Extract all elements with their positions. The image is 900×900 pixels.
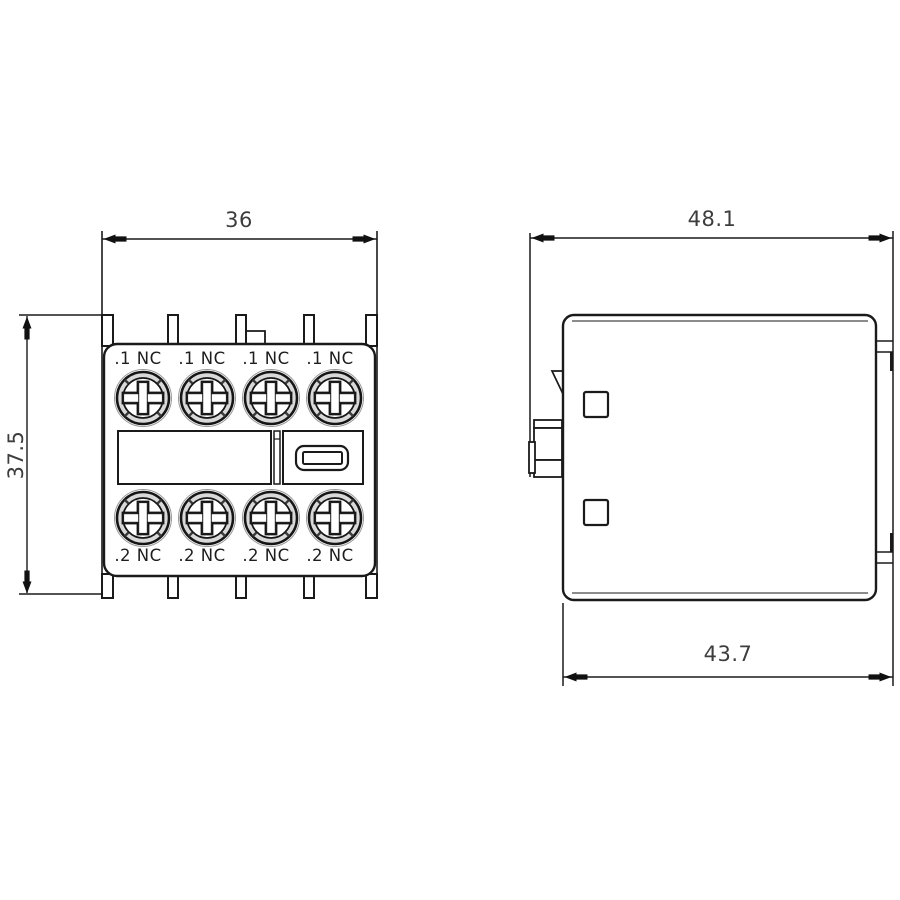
terminal-label-bottom-3: .2 NC [234, 547, 298, 565]
arrowhead-right [869, 673, 892, 682]
terminal-label-top-1: .1 NC [106, 350, 170, 368]
front-view-drawing [19, 231, 377, 598]
arrowhead-left [532, 234, 555, 243]
terminal-label-bottom-1: .2 NC [106, 547, 170, 565]
label-window-inner [303, 452, 342, 464]
front-height-dimension-line [19, 315, 102, 594]
side-latch-hook [552, 371, 563, 394]
front-height-dimension-value: 37.5 [5, 425, 27, 485]
front-top-tabs [102, 315, 377, 346]
arrowhead-up [23, 317, 32, 340]
side-rear-tabs [876, 341, 893, 563]
front-middle-band [118, 431, 363, 484]
arrowhead-right [353, 235, 376, 244]
arrowhead-left [104, 235, 127, 244]
arrowhead-left [565, 673, 588, 682]
side-actuator-plunger [529, 420, 562, 477]
arrowhead-right [869, 234, 892, 243]
top-tab-step [246, 331, 265, 344]
side-view-drawing [529, 231, 893, 686]
drawing-linework [0, 0, 900, 900]
terminal-label-bottom-4: .2 NC [298, 547, 362, 565]
terminal-label-top-4: .1 NC [298, 350, 362, 368]
side-depth-overall-dimension-value: 48.1 [682, 208, 742, 230]
front-bottom-tabs [102, 574, 377, 598]
front-width-dimension-value: 36 [209, 209, 269, 231]
terminal-label-top-2: .1 NC [170, 350, 234, 368]
side-depth-body-dimension-value: 43.7 [698, 643, 758, 665]
arrowhead-down [23, 571, 32, 594]
marking-field [118, 431, 271, 484]
terminal-label-bottom-2: .2 NC [170, 547, 234, 565]
technical-drawing-canvas: 36 37.5 48.1 43.7 .1 NC .1 NC .1 NC .1 N… [0, 0, 900, 900]
terminal-label-top-3: .1 NC [234, 350, 298, 368]
side-body-outline [563, 315, 876, 600]
